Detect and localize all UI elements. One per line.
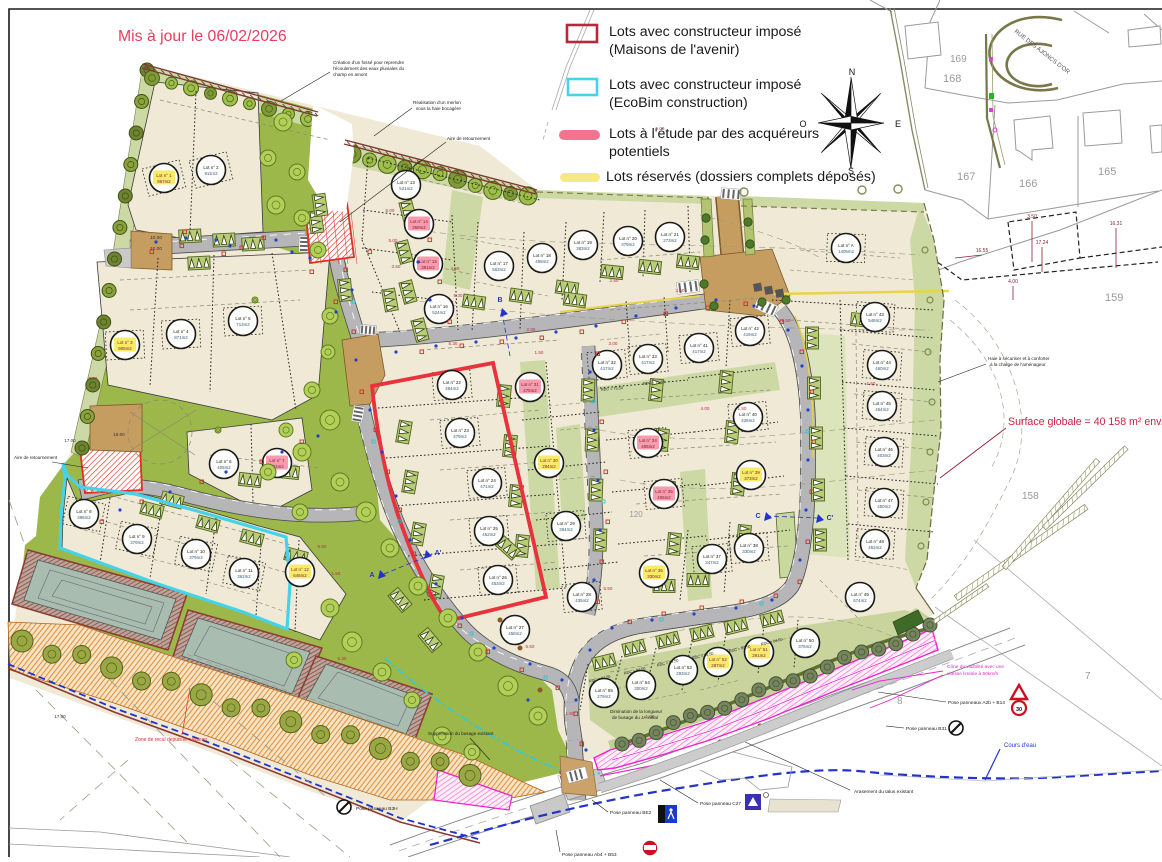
svg-text:287m2: 287m2 [711,663,725,668]
svg-text:Lot n° 11: Lot n° 11 [235,568,253,573]
svg-text:293m2: 293m2 [676,671,690,676]
svg-text:4.00: 4.00 [701,406,710,411]
svg-text:5.50: 5.50 [318,544,327,549]
svg-text:Cône de visibilité avec une: Cône de visibilité avec une [947,664,1004,670]
svg-text:273m2: 273m2 [663,238,677,243]
svg-text:Lot n° 29: Lot n° 29 [557,521,575,526]
svg-text:Lot n° 48: Lot n° 48 [866,539,884,544]
svg-text:120: 120 [629,510,643,519]
svg-text:de busage du JA initial: de busage du JA initial [612,715,658,720]
svg-text:Lot n° 41: Lot n° 41 [690,343,708,348]
svg-text:419m2: 419m2 [743,332,757,337]
svg-text:Lot n° 4: Lot n° 4 [173,329,189,334]
svg-text:1.50: 1.50 [782,318,791,323]
svg-text:166: 166 [1019,178,1037,190]
svg-text:548m2: 548m2 [868,318,882,323]
svg-text:Lot n° 9: Lot n° 9 [129,534,145,539]
svg-text:E: E [895,119,901,129]
svg-text:Lot n° 10: Lot n° 10 [187,549,205,554]
svg-text:1.50: 1.50 [738,406,747,411]
svg-text:Lot n° 54: Lot n° 54 [632,680,650,685]
svg-text:294m2: 294m2 [542,464,556,469]
svg-text:10.00: 10.00 [150,235,162,241]
svg-text:2.50: 2.50 [610,278,619,283]
svg-text:406m2: 406m2 [657,495,671,500]
svg-text:279m2: 279m2 [597,694,611,699]
svg-text:396m2: 396m2 [77,515,91,520]
svg-text:8: 8 [897,696,903,707]
svg-text:291m2: 291m2 [752,653,766,658]
svg-text:Lot n° 12: Lot n° 12 [291,567,309,572]
svg-text:vitesse limitée à 50km/h: vitesse limitée à 50km/h [947,671,999,677]
svg-text:383m2: 383m2 [576,246,590,251]
svg-text:17.00: 17.00 [64,438,76,443]
svg-text:5.30: 5.30 [338,656,347,661]
svg-text:6.00: 6.00 [89,376,98,381]
svg-text:5.50: 5.50 [526,644,535,649]
svg-text:Zone de recul depuis le ruisse: Zone de recul depuis le ruisseau [135,737,207,743]
svg-text:563m2: 563m2 [492,267,506,272]
svg-text:Lot n° 13: Lot n° 13 [397,180,415,185]
svg-text:Lot n° 45: Lot n° 45 [873,401,891,406]
svg-text:Lot n° 15: Lot n° 15 [419,259,437,264]
svg-text:458m2: 458m2 [535,259,549,264]
svg-text:394m2: 394m2 [559,527,573,532]
svg-text:475m2: 475m2 [523,388,537,393]
svg-text:l'écoulement des eaux pluviale: l'écoulement des eaux pluviales du [333,66,405,71]
svg-text:Lot n° 47: Lot n° 47 [875,498,893,503]
svg-text:Lots à l'étude par des acquére: Lots à l'étude par des acquéreurs [609,126,819,142]
svg-text:Lot n° 50: Lot n° 50 [796,638,814,643]
svg-text:5.30: 5.30 [454,293,463,298]
svg-text:165: 165 [1098,166,1116,178]
svg-text:C: C [755,513,760,520]
svg-text:potentiels: potentiels [609,144,670,160]
svg-text:à la charge de l'aménageur: à la charge de l'aménageur [990,362,1046,367]
svg-text:Pose panneau B31: Pose panneau B31 [906,726,947,732]
svg-text:Lot n° 37: Lot n° 37 [703,554,721,559]
svg-text:674m2: 674m2 [853,598,867,603]
svg-text:Lot n° 51: Lot n° 51 [750,647,768,652]
svg-text:Lot n° 42: Lot n° 42 [741,326,759,331]
svg-text:3.50: 3.50 [392,264,401,269]
svg-text:Haie à sécuriser et à conforte: Haie à sécuriser et à conforter [988,356,1050,361]
svg-text:5.30: 5.30 [449,341,458,346]
svg-text:406m2: 406m2 [641,444,655,449]
svg-text:Lot n° 19: Lot n° 19 [574,240,592,245]
svg-text:Lot n° 14: Lot n° 14 [410,219,428,224]
svg-text:458m2: 458m2 [508,631,522,636]
svg-text:450m2: 450m2 [877,504,891,509]
svg-text:4.50: 4.50 [451,266,460,271]
svg-text:167: 167 [957,171,975,183]
svg-text:Lot n° 52: Lot n° 52 [709,657,727,662]
svg-text:Réalisation d'un merlon: Réalisation d'un merlon [413,100,461,105]
svg-text:Lot n° 38: Lot n° 38 [740,543,758,548]
svg-text:Lot n° 25: Lot n° 25 [480,526,498,531]
svg-text:Lot n° 2: Lot n° 2 [203,165,219,170]
svg-text:Lot n° 46: Lot n° 46 [875,447,893,452]
svg-text:Mis à jour le 06/02/2026: Mis à jour le 06/02/2026 [118,28,287,45]
svg-text:Pose panneaux A2b + B14: Pose panneaux A2b + B14 [948,700,1005,706]
svg-text:Aire de retournement: Aire de retournement [14,455,58,460]
svg-text:Lot n° 6: Lot n° 6 [216,459,232,464]
svg-text:484m2: 484m2 [445,386,459,391]
svg-text:(EcoBim construction): (EcoBim construction) [609,95,748,111]
svg-text:Suppression du busage existant: Suppression du busage existant [428,731,494,736]
svg-text:Lot n° 36: Lot n° 36 [645,568,663,573]
svg-text:Lot n° 21: Lot n° 21 [661,232,679,237]
svg-text:Pose panneau B3H: Pose panneau B3H [356,806,398,812]
svg-text:713m2: 713m2 [236,322,250,327]
svg-text:sous la haie bocagère: sous la haie bocagère [416,106,461,111]
svg-text:18.00: 18.00 [113,432,125,437]
svg-text:3.50: 3.50 [1027,214,1037,220]
svg-text:Aire de retournement: Aire de retournement [447,136,491,141]
svg-text:Lot n° 30: Lot n° 30 [540,458,558,463]
svg-text:Lots avec constructeur imposé: Lots avec constructeur imposé [609,77,802,93]
svg-text:Surface globale = 40 158 m² en: Surface globale = 40 158 m² env. [1008,416,1162,428]
svg-text:169: 169 [950,54,967,65]
svg-text:Lot n° 17: Lot n° 17 [490,261,508,266]
svg-text:1.50: 1.50 [332,571,341,576]
svg-text:17.24: 17.24 [1036,240,1049,246]
svg-text:1405m2: 1405m2 [838,249,854,254]
svg-text:Diminution de la longueur: Diminution de la longueur [610,709,663,714]
svg-text:Lot n° 24: Lot n° 24 [478,478,496,483]
svg-text:Lot n° 32: Lot n° 32 [598,360,616,365]
svg-text:159: 159 [1105,292,1123,304]
svg-text:Lot n° 16: Lot n° 16 [430,304,448,309]
svg-text:Lot n° 1: Lot n° 1 [156,173,172,178]
svg-text:30: 30 [1016,707,1022,713]
svg-text:911m2: 911m2 [204,171,218,176]
svg-text:Lot n° 22: Lot n° 22 [443,380,461,385]
svg-text:391m2: 391m2 [421,265,435,270]
svg-text:10.00: 10.00 [150,246,162,252]
svg-text:362m2: 362m2 [237,574,251,579]
svg-text:405m2: 405m2 [217,465,231,470]
svg-text:1.50: 1.50 [535,350,544,355]
svg-text:Pose panneau BE2: Pose panneau BE2 [610,810,652,816]
svg-text:5.00: 5.00 [656,126,665,131]
svg-text:A': A' [435,550,442,557]
svg-text:Lot n° 5: Lot n° 5 [235,316,251,321]
svg-text:Lots avec constructeur imposé: Lots avec constructeur imposé [609,24,802,40]
svg-text:967m2: 967m2 [157,179,171,184]
svg-text:168: 168 [943,73,961,85]
svg-text:Lot n° 40: Lot n° 40 [739,412,757,417]
svg-text:B: B [497,297,502,304]
svg-text:5.00: 5.00 [389,238,398,243]
svg-text:2.00: 2.00 [527,327,536,332]
svg-text:905m2: 905m2 [118,346,132,351]
svg-text:471m2: 471m2 [480,484,494,489]
svg-text:Pose panneau C27: Pose panneau C27 [700,801,741,807]
svg-text:Lot n° 55: Lot n° 55 [595,688,613,693]
svg-text:O: O [799,119,806,129]
svg-text:Lots réservés (dossiers comple: Lots réservés (dossiers complets déposés… [606,169,876,185]
svg-text:379m2: 379m2 [621,242,635,247]
svg-text:N: N [849,67,856,77]
svg-text:330m2: 330m2 [742,549,756,554]
svg-text:462m2: 462m2 [482,532,496,537]
svg-text:521m2: 521m2 [399,186,413,191]
svg-text:Lot n° 26: Lot n° 26 [489,575,507,580]
svg-text:Lot n° 7: Lot n° 7 [269,458,285,463]
svg-text:Lot n° 3: Lot n° 3 [117,340,133,345]
svg-text:347m2: 347m2 [705,560,719,565]
svg-text:Création d'un fossé pour repre: Création d'un fossé pour reprendre [333,60,405,65]
svg-text:403m2: 403m2 [877,453,891,458]
svg-text:Arasement du talus existant: Arasement du talus existant [854,789,914,795]
svg-text:(Maisons de l'avenir): (Maisons de l'avenir) [609,42,739,58]
svg-text:17.00: 17.00 [54,714,66,719]
svg-text:Lot n° 18: Lot n° 18 [533,253,551,258]
svg-text:3.00: 3.00 [609,341,618,346]
svg-text:Lot n° 34: Lot n° 34 [639,438,657,443]
svg-text:Lot n° A: Lot n° A [838,243,853,248]
svg-text:Lot n° 33: Lot n° 33 [639,354,657,359]
svg-text:417m2: 417m2 [641,360,655,365]
svg-text:330m2: 330m2 [647,574,661,579]
svg-text:2.50: 2.50 [676,288,685,293]
svg-text:524m2: 524m2 [432,310,446,315]
svg-text:464m2: 464m2 [875,407,889,412]
svg-text:Lot n° 39: Lot n° 39 [742,470,760,475]
svg-text:Lot n° 20: Lot n° 20 [619,236,637,241]
svg-text:16.55: 16.55 [976,248,989,254]
svg-text:453m2: 453m2 [491,581,505,586]
svg-text:Lot n° 44: Lot n° 44 [873,360,891,365]
svg-text:A: A [369,572,374,579]
svg-text:Lot n° 8: Lot n° 8 [76,509,92,514]
svg-text:Lot n° 49: Lot n° 49 [851,592,869,597]
svg-text:Lot n° 23: Lot n° 23 [451,428,469,433]
svg-text:Lot n° 53: Lot n° 53 [674,665,692,670]
svg-text:379m2: 379m2 [189,555,203,560]
svg-text:C': C' [827,515,834,522]
svg-text:375m2: 375m2 [798,644,812,649]
svg-text:Lot n° 35: Lot n° 35 [655,489,673,494]
svg-text:417m2: 417m2 [600,366,614,371]
svg-text:Pose panneau Ab4 + B53: Pose panneau Ab4 + B53 [562,852,617,857]
svg-text:460m2: 460m2 [875,366,889,371]
svg-text:Cours d'eau: Cours d'eau [1004,743,1036,749]
svg-text:champ en amont: champ en amont [333,72,368,77]
svg-text:426m2: 426m2 [741,418,755,423]
svg-text:369m2: 369m2 [412,225,426,230]
svg-text:479m2: 479m2 [453,434,467,439]
svg-text:373m2: 373m2 [744,476,758,481]
svg-text:16.31: 16.31 [1110,221,1123,227]
svg-text:452m2: 452m2 [868,545,882,550]
svg-text:379m2: 379m2 [130,540,144,545]
svg-text:646m2: 646m2 [293,573,307,578]
svg-text:5.00: 5.00 [386,208,395,213]
svg-text:1.50: 1.50 [867,381,876,386]
svg-text:7: 7 [1085,671,1091,682]
svg-text:Lot n° 31: Lot n° 31 [521,382,539,387]
svg-text:Lot n° 27: Lot n° 27 [506,625,524,630]
svg-text:417m2: 417m2 [692,349,706,354]
svg-text:871m2: 871m2 [174,335,188,340]
svg-text:Lot n° 43: Lot n° 43 [866,312,884,317]
svg-text:435m2: 435m2 [575,598,589,603]
svg-text:1.50: 1.50 [566,711,575,716]
svg-text:S: S [848,166,854,176]
svg-text:300m2: 300m2 [634,686,648,691]
svg-text:4.00: 4.00 [1008,279,1018,285]
svg-text:Lot n° 28: Lot n° 28 [573,592,591,597]
svg-text:158: 158 [1022,491,1039,502]
svg-text:5.50: 5.50 [604,586,613,591]
